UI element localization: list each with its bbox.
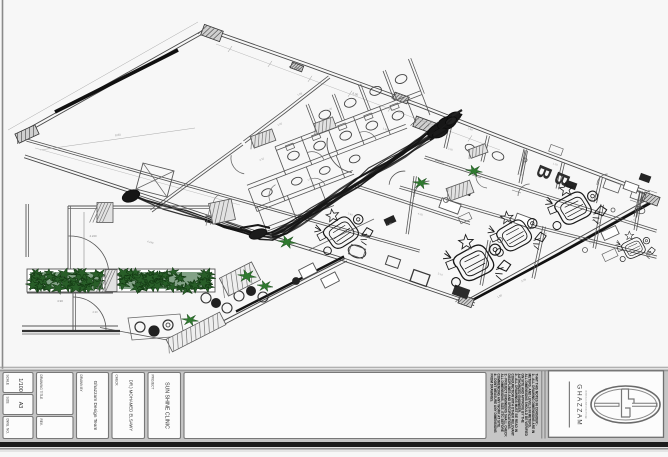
svg-text:2.30: 2.30 [92,310,98,314]
svg-text:FROM DRAWINGS.: FROM DRAWINGS. [490,374,494,403]
svg-text:SUN SHINE CLINIC: SUN SHINE CLINIC [164,382,170,429]
svg-text:DR.) MOHAMED ELSAWY: DR.) MOHAMED ELSAWY [129,380,134,432]
svg-text:DRAWN BY: DRAWN BY [79,375,83,393]
svg-text:DWG. NO.: DWG. NO. [6,419,10,434]
svg-text:SCALE: SCALE [6,375,10,385]
svg-text:G H A Z Z A M: G H A Z Z A M [576,384,583,424]
svg-text:REV.: REV. [39,419,43,426]
svg-text:CHECK: CHECK [115,375,119,387]
svg-text:PROJECT: PROJECT [151,375,155,390]
svg-text:1/100: 1/100 [17,378,23,392]
svg-text:DRAWING TITLE: DRAWING TITLE [39,375,43,400]
svg-text:Architecture And Interior Desi: Architecture And Interior Design [585,390,588,418]
svg-text:4.240: 4.240 [90,234,97,238]
svg-text:8.80: 8.80 [115,133,122,138]
svg-text:SIZE: SIZE [6,397,10,404]
svg-text:Ghazzam Design Team: Ghazzam Design Team [92,381,98,431]
svg-text:A3: A3 [17,402,23,409]
svg-text:4.90: 4.90 [57,299,63,303]
